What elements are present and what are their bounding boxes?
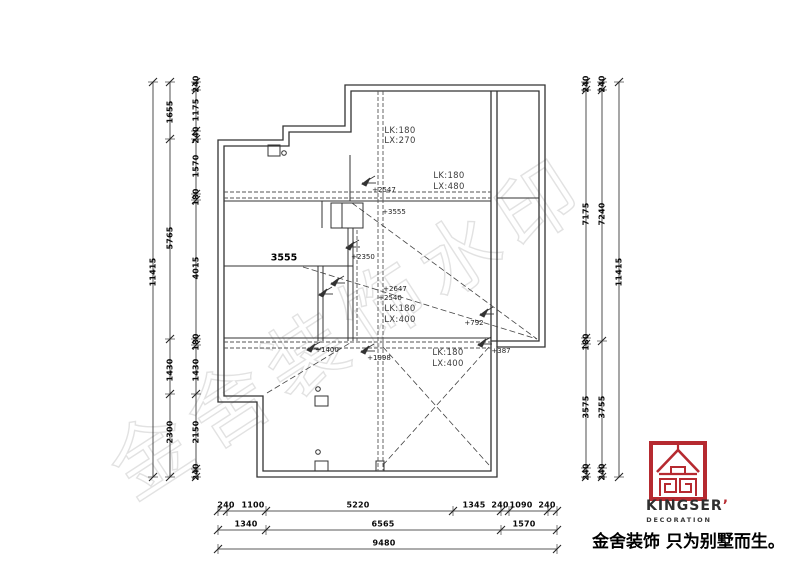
brand-mark: ’ — [723, 498, 729, 514]
dim-label: 1345 — [462, 501, 485, 510]
dim-label: 5765 — [166, 226, 175, 249]
beam-label: LK:180 — [432, 348, 463, 358]
dim-label: 2300 — [166, 420, 175, 443]
dim-label: 240 — [192, 126, 201, 143]
beam-label: LX:270 — [384, 136, 415, 146]
level-label: +2547 — [372, 186, 396, 194]
dim-label: 240 — [192, 75, 201, 92]
brand-subtitle: DECORATION — [646, 516, 712, 524]
dim-label: 240 — [582, 463, 591, 480]
dim-label: 5220 — [346, 501, 369, 510]
dim-label: 3755 — [598, 395, 607, 418]
beam-label: LX:400 — [432, 359, 463, 369]
brand-tagline: 金舍装饰 只为别墅而生。 — [592, 527, 785, 552]
dim-label: 1570 — [512, 520, 535, 529]
dim-label: 3575 — [582, 395, 591, 418]
level-label: +1400 — [315, 346, 339, 354]
floor-plan-page: 金舍装饰水印 — [0, 0, 800, 566]
dim-label: 240 — [538, 501, 555, 510]
dim-label: 11415 — [615, 258, 624, 287]
level-label: +1998 — [367, 354, 391, 362]
dim-label: 240 — [192, 463, 201, 480]
level-label: +2350 — [351, 253, 375, 261]
beam-label: LX:480 — [433, 182, 464, 192]
dim-label: 1430 — [166, 358, 175, 381]
level-label: +2540 — [378, 294, 402, 302]
level-label: +792 — [464, 319, 483, 327]
dim-label: 240 — [491, 501, 508, 510]
dim-label: 7175 — [582, 202, 591, 225]
dim-label: 2150 — [192, 420, 201, 443]
dim-label: 240 — [217, 501, 234, 510]
dim-label: 11415 — [149, 258, 158, 287]
dim-label: 1100 — [241, 501, 264, 510]
dim-label: 4015 — [192, 256, 201, 279]
brand-name: KINGSER’ — [646, 498, 712, 514]
level-label: +3555 — [382, 208, 406, 216]
dim-label: 1175 — [192, 98, 201, 121]
dim-label: 180 — [192, 188, 201, 205]
dim-label: 240 — [582, 75, 591, 92]
dim-label: 240 — [598, 75, 607, 92]
beam-label: LK:180 — [433, 171, 464, 181]
dim-label: 240 — [598, 463, 607, 480]
dim-label: 1090 — [509, 501, 532, 510]
level-label: +2647 — [383, 285, 407, 293]
dim-label: 7240 — [598, 202, 607, 225]
beam-label: LK:180 — [384, 126, 415, 136]
dim-label: 180 — [582, 333, 591, 350]
level-label: +387 — [491, 347, 510, 355]
dim-label: 6565 — [371, 520, 394, 529]
dim-label: 1655 — [166, 100, 175, 123]
beam-label: LX:400 — [384, 315, 415, 325]
room-dim-label: 3555 — [271, 253, 297, 264]
dim-label: 1340 — [234, 520, 257, 529]
dim-label: 180 — [192, 333, 201, 350]
dim-label: 9480 — [372, 539, 395, 548]
beam-label: LK:180 — [384, 304, 415, 314]
dim-label: 1570 — [192, 154, 201, 177]
dim-label: 1430 — [192, 358, 201, 381]
